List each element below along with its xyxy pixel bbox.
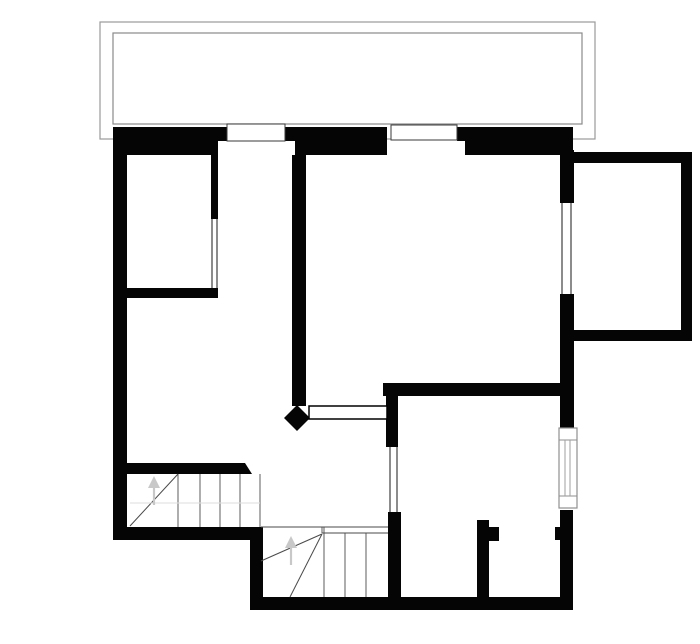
wall-closet-door-jamb xyxy=(489,527,499,541)
wall-central xyxy=(292,155,306,406)
floor-plan-drawing xyxy=(0,0,700,644)
window-north-1 xyxy=(227,124,285,141)
wall-west xyxy=(113,127,127,540)
wall-east-mid xyxy=(560,294,574,428)
wall-sw-band xyxy=(113,527,257,540)
balcony-inner-outline xyxy=(113,33,582,124)
wall-annex-top xyxy=(573,152,692,163)
wall-north-lower-mid xyxy=(295,141,387,155)
stair2-winder-line-2 xyxy=(290,534,322,597)
wall-annex-right xyxy=(681,152,692,341)
wall-north-upper-mid xyxy=(285,127,387,141)
door-leaf-open xyxy=(309,406,387,419)
wall-sw-bottom xyxy=(250,597,390,610)
wall-closet-partition xyxy=(477,520,489,610)
wall-north-lower-right xyxy=(465,141,573,155)
wall-north-upper-left xyxy=(113,127,227,141)
floor-plan xyxy=(0,0,700,644)
wall-stair-top xyxy=(127,463,252,474)
wall-north-lower-left xyxy=(113,141,218,155)
wall-se-room-west-upper xyxy=(386,383,398,447)
wall-annex-bottom xyxy=(573,330,692,341)
stair2-arrow-head xyxy=(285,536,297,548)
wall-nw-room-south xyxy=(127,288,218,298)
wall-east-door-jamb xyxy=(555,527,562,540)
window-north-2 xyxy=(391,125,457,140)
stair1-arrow-head xyxy=(148,476,160,488)
wall-east-lower xyxy=(560,510,573,610)
wall-north-upper-right xyxy=(457,127,573,141)
wall-se-room-west-lower xyxy=(388,512,401,610)
wall-nw-room-east xyxy=(211,155,218,219)
wall-east-upper xyxy=(560,150,574,203)
wall-se-room-top xyxy=(383,383,573,396)
door-pivot-diamond xyxy=(284,405,310,431)
